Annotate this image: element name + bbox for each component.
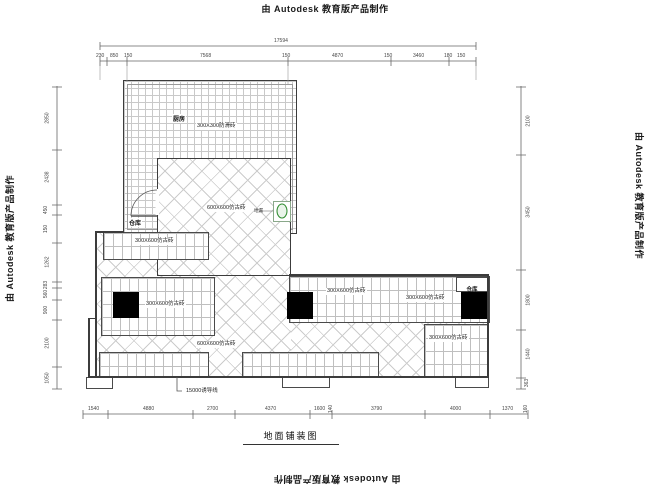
- dim-value: 363: [524, 379, 530, 387]
- dim-value: 140: [328, 405, 334, 413]
- drain-icon: [277, 204, 287, 218]
- dim-value: 2850: [45, 112, 51, 123]
- dim-value: 230: [96, 53, 104, 59]
- linework-overlay: [0, 0, 650, 493]
- cad-screenshot: { "edge_labels": { "top": "由 Autodesk 教育…: [0, 0, 650, 493]
- dim-value: 4870: [332, 53, 343, 59]
- dimension-line-top-total: [100, 42, 476, 50]
- floor-plan: 仓库 厨房 300X300防滑砖 仓库 600X600仿古砖 600X600仿古…: [0, 0, 650, 493]
- dim-value: 2700: [207, 406, 218, 412]
- dim-value: 1262: [45, 256, 51, 267]
- dim-value: 1050: [45, 372, 51, 383]
- dim-value: 17594: [274, 38, 288, 44]
- door-opening-gap: [156, 189, 160, 215]
- dim-value: 2438: [45, 171, 51, 182]
- dim-value: 1600: [314, 406, 325, 412]
- dim-value: 850: [110, 53, 118, 59]
- leader-line: [177, 377, 182, 391]
- dim-value: 7568: [200, 53, 211, 59]
- dim-value: 150: [384, 53, 392, 59]
- dim-value: 150: [124, 53, 132, 59]
- dim-value: 180: [444, 53, 452, 59]
- dim-value: 4000: [450, 406, 461, 412]
- dim-value: 1440: [526, 348, 532, 359]
- dim-value: 3450: [526, 206, 532, 217]
- dim-value: 283: [43, 281, 49, 289]
- dim-value: 1370: [502, 406, 513, 412]
- dim-value: 900: [43, 306, 49, 314]
- dim-value: 160: [523, 405, 529, 413]
- dim-value: 2100: [45, 337, 51, 348]
- dim-value: 3460: [413, 53, 424, 59]
- dim-value: 4880: [143, 406, 154, 412]
- door-swing-arc: [131, 190, 157, 216]
- dim-value: 560: [43, 290, 49, 298]
- dimension-line-left: [52, 86, 62, 389]
- dim-value: 150: [43, 225, 49, 233]
- witness-lines-top: [100, 66, 476, 84]
- dim-value: 150: [282, 53, 290, 59]
- dim-value: 4370: [265, 406, 276, 412]
- dim-value: 3790: [371, 406, 382, 412]
- dim-value: 1540: [88, 406, 99, 412]
- dim-value: 1800: [526, 294, 532, 305]
- dim-value: 150: [457, 53, 465, 59]
- dimension-line-right: [516, 86, 526, 389]
- dim-value: 2100: [526, 115, 532, 126]
- drawing-title: 地面铺装图: [243, 429, 339, 445]
- dim-value: 450: [43, 206, 49, 214]
